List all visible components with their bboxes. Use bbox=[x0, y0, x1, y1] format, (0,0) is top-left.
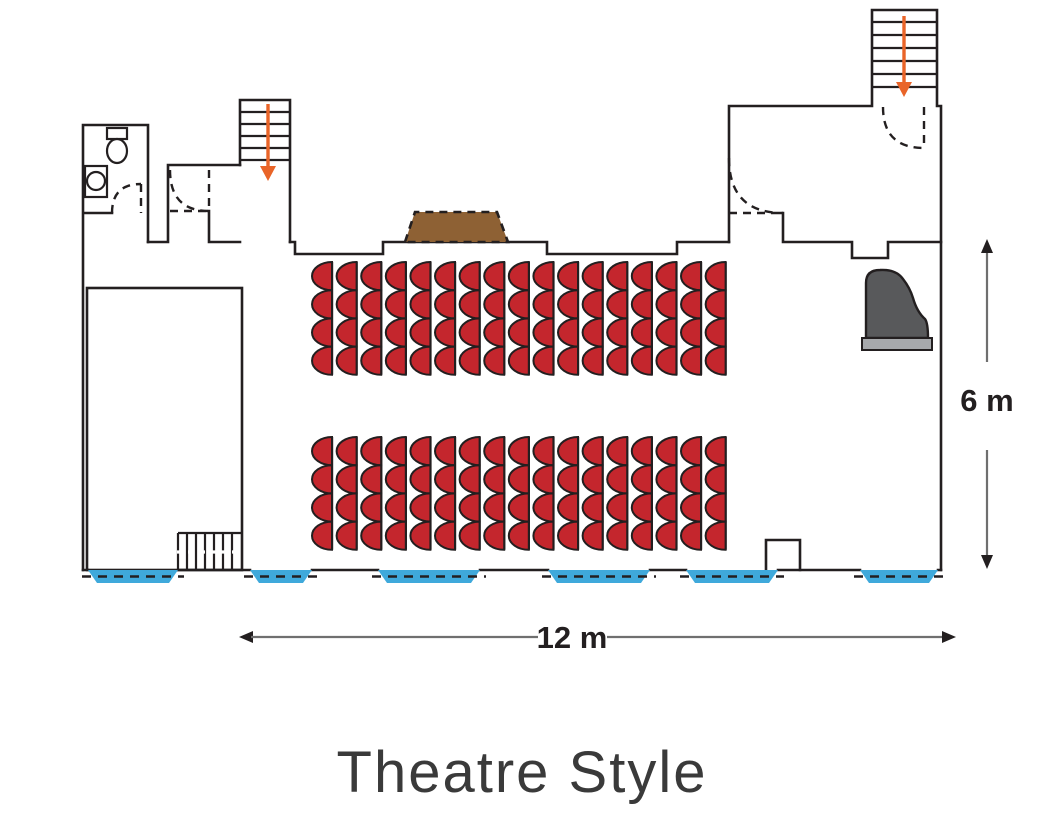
seat bbox=[509, 465, 529, 493]
seat bbox=[607, 318, 627, 346]
seat bbox=[607, 437, 627, 465]
seat bbox=[337, 318, 357, 346]
seat bbox=[361, 318, 381, 346]
seat bbox=[509, 290, 529, 318]
seat bbox=[484, 493, 504, 521]
seat bbox=[312, 465, 332, 493]
seat bbox=[558, 318, 578, 346]
seat bbox=[681, 347, 701, 375]
seat bbox=[558, 493, 578, 521]
seat bbox=[410, 347, 430, 375]
seat bbox=[632, 522, 652, 550]
seat bbox=[312, 290, 332, 318]
seat bbox=[583, 437, 603, 465]
seat bbox=[484, 522, 504, 550]
seat bbox=[460, 347, 480, 375]
seat bbox=[558, 262, 578, 290]
seat bbox=[558, 290, 578, 318]
seat bbox=[386, 262, 406, 290]
seat bbox=[632, 437, 652, 465]
seat bbox=[460, 522, 480, 550]
seat bbox=[312, 347, 332, 375]
seat bbox=[706, 262, 726, 290]
lectern-podium bbox=[405, 212, 508, 242]
seat bbox=[583, 262, 603, 290]
seat bbox=[632, 290, 652, 318]
seat bbox=[312, 437, 332, 465]
wall-recess bbox=[766, 540, 800, 570]
seat bbox=[706, 437, 726, 465]
seat bbox=[558, 522, 578, 550]
seat bbox=[656, 290, 676, 318]
seat bbox=[558, 465, 578, 493]
window bbox=[372, 570, 486, 583]
seat bbox=[583, 318, 603, 346]
seat bbox=[410, 522, 430, 550]
seat bbox=[533, 318, 553, 346]
seat bbox=[460, 290, 480, 318]
seat bbox=[533, 290, 553, 318]
arrow-right-icon bbox=[942, 631, 956, 643]
seat bbox=[435, 262, 455, 290]
stairs-top-right bbox=[872, 16, 937, 97]
seat bbox=[435, 290, 455, 318]
seat bbox=[337, 347, 357, 375]
seat bbox=[312, 262, 332, 290]
seat bbox=[583, 347, 603, 375]
piano-keyboard bbox=[862, 338, 932, 350]
seat bbox=[681, 493, 701, 521]
seat bbox=[435, 465, 455, 493]
seat bbox=[361, 290, 381, 318]
seat bbox=[656, 437, 676, 465]
seat bbox=[484, 290, 504, 318]
seat bbox=[410, 318, 430, 346]
seat bbox=[509, 262, 529, 290]
seat bbox=[533, 437, 553, 465]
seat bbox=[632, 262, 652, 290]
seat bbox=[681, 318, 701, 346]
seat bbox=[706, 522, 726, 550]
seat bbox=[681, 437, 701, 465]
seat bbox=[484, 347, 504, 375]
sink-basin-icon bbox=[87, 172, 105, 190]
vestibule-stairs-door bbox=[883, 107, 924, 148]
seat bbox=[435, 437, 455, 465]
seat bbox=[607, 522, 627, 550]
seat bbox=[460, 318, 480, 346]
doors bbox=[112, 107, 924, 213]
seat bbox=[361, 262, 381, 290]
seat bbox=[410, 493, 430, 521]
seat bbox=[361, 493, 381, 521]
seat bbox=[681, 465, 701, 493]
seat bbox=[583, 522, 603, 550]
window bbox=[680, 570, 784, 583]
seat bbox=[706, 493, 726, 521]
seat bbox=[656, 522, 676, 550]
seat bbox=[607, 262, 627, 290]
seat bbox=[361, 465, 381, 493]
seat bbox=[386, 290, 406, 318]
seat bbox=[681, 262, 701, 290]
window bbox=[244, 570, 318, 583]
seat bbox=[460, 493, 480, 521]
stairs-down-arrow bbox=[896, 16, 912, 97]
seat bbox=[632, 493, 652, 521]
dimension-width: 12 m bbox=[239, 620, 956, 655]
seat bbox=[681, 522, 701, 550]
seat bbox=[656, 493, 676, 521]
stage-exit-arrow bbox=[160, 545, 238, 559]
seat bbox=[558, 437, 578, 465]
seat bbox=[312, 522, 332, 550]
seat bbox=[435, 522, 455, 550]
windows bbox=[82, 570, 944, 583]
seat bbox=[656, 347, 676, 375]
wc-room bbox=[85, 128, 127, 197]
seat bbox=[386, 437, 406, 465]
seat bbox=[509, 318, 529, 346]
seat bbox=[460, 262, 480, 290]
seat bbox=[435, 318, 455, 346]
page-title: Theatre Style bbox=[337, 740, 708, 805]
seat bbox=[533, 522, 553, 550]
corridor-door bbox=[170, 170, 209, 211]
seat bbox=[410, 290, 430, 318]
seat bbox=[386, 493, 406, 521]
seat bbox=[632, 318, 652, 346]
seat bbox=[583, 465, 603, 493]
seat bbox=[361, 522, 381, 550]
arrow-left-icon bbox=[239, 631, 253, 643]
stairs-top-left bbox=[240, 104, 290, 181]
stage-platform bbox=[87, 288, 242, 570]
seat bbox=[312, 318, 332, 346]
seat bbox=[656, 465, 676, 493]
seat bbox=[484, 437, 504, 465]
seat bbox=[337, 437, 357, 465]
seat bbox=[410, 437, 430, 465]
seat bbox=[509, 522, 529, 550]
seat bbox=[583, 290, 603, 318]
seat bbox=[386, 465, 406, 493]
front-block bbox=[312, 262, 726, 375]
seat bbox=[386, 522, 406, 550]
toilet-bowl-icon bbox=[107, 139, 127, 163]
seat bbox=[533, 262, 553, 290]
dimension-height: 6 m bbox=[960, 239, 1013, 569]
seat bbox=[607, 347, 627, 375]
seat bbox=[509, 437, 529, 465]
seat bbox=[656, 262, 676, 290]
seat bbox=[337, 522, 357, 550]
rear-block bbox=[312, 437, 726, 550]
seat bbox=[410, 465, 430, 493]
wc-door bbox=[112, 184, 141, 213]
seat bbox=[386, 318, 406, 346]
toilet-cistern-icon bbox=[107, 128, 127, 139]
seat bbox=[410, 262, 430, 290]
floor-plan-diagram: 6 m 12 m Theatre Style bbox=[0, 0, 1041, 821]
seat bbox=[361, 437, 381, 465]
arrow-up-icon bbox=[981, 239, 993, 253]
window bbox=[854, 570, 944, 583]
seat bbox=[361, 347, 381, 375]
seat bbox=[533, 493, 553, 521]
seat bbox=[337, 493, 357, 521]
seat bbox=[706, 347, 726, 375]
seat bbox=[460, 465, 480, 493]
seat bbox=[607, 465, 627, 493]
seat bbox=[607, 493, 627, 521]
seat bbox=[706, 465, 726, 493]
seat bbox=[533, 347, 553, 375]
seat bbox=[435, 347, 455, 375]
seat bbox=[558, 347, 578, 375]
seat bbox=[312, 493, 332, 521]
theatre-seating bbox=[312, 262, 726, 550]
grand-piano-icon bbox=[862, 270, 932, 350]
seat bbox=[607, 290, 627, 318]
width-label: 12 m bbox=[537, 620, 608, 655]
floor-plan-page: 6 m 12 m Theatre Style bbox=[0, 0, 1041, 821]
seat bbox=[509, 493, 529, 521]
height-label: 6 m bbox=[960, 383, 1013, 418]
seat bbox=[337, 262, 357, 290]
seat bbox=[509, 347, 529, 375]
seat bbox=[632, 465, 652, 493]
seat bbox=[706, 318, 726, 346]
arrow-down-icon bbox=[981, 555, 993, 569]
window bbox=[542, 570, 656, 583]
seat bbox=[706, 290, 726, 318]
seat bbox=[435, 493, 455, 521]
seat bbox=[656, 318, 676, 346]
seat bbox=[484, 318, 504, 346]
vestibule-hall-door bbox=[729, 158, 783, 213]
seat bbox=[533, 465, 553, 493]
seat bbox=[460, 437, 480, 465]
seat bbox=[583, 493, 603, 521]
stage-area bbox=[87, 288, 242, 570]
seat bbox=[337, 290, 357, 318]
seat bbox=[632, 347, 652, 375]
window bbox=[82, 570, 184, 583]
seat bbox=[337, 465, 357, 493]
stairs-down-arrow bbox=[260, 104, 276, 181]
seat bbox=[484, 262, 504, 290]
seat bbox=[386, 347, 406, 375]
seat bbox=[484, 465, 504, 493]
seat bbox=[681, 290, 701, 318]
